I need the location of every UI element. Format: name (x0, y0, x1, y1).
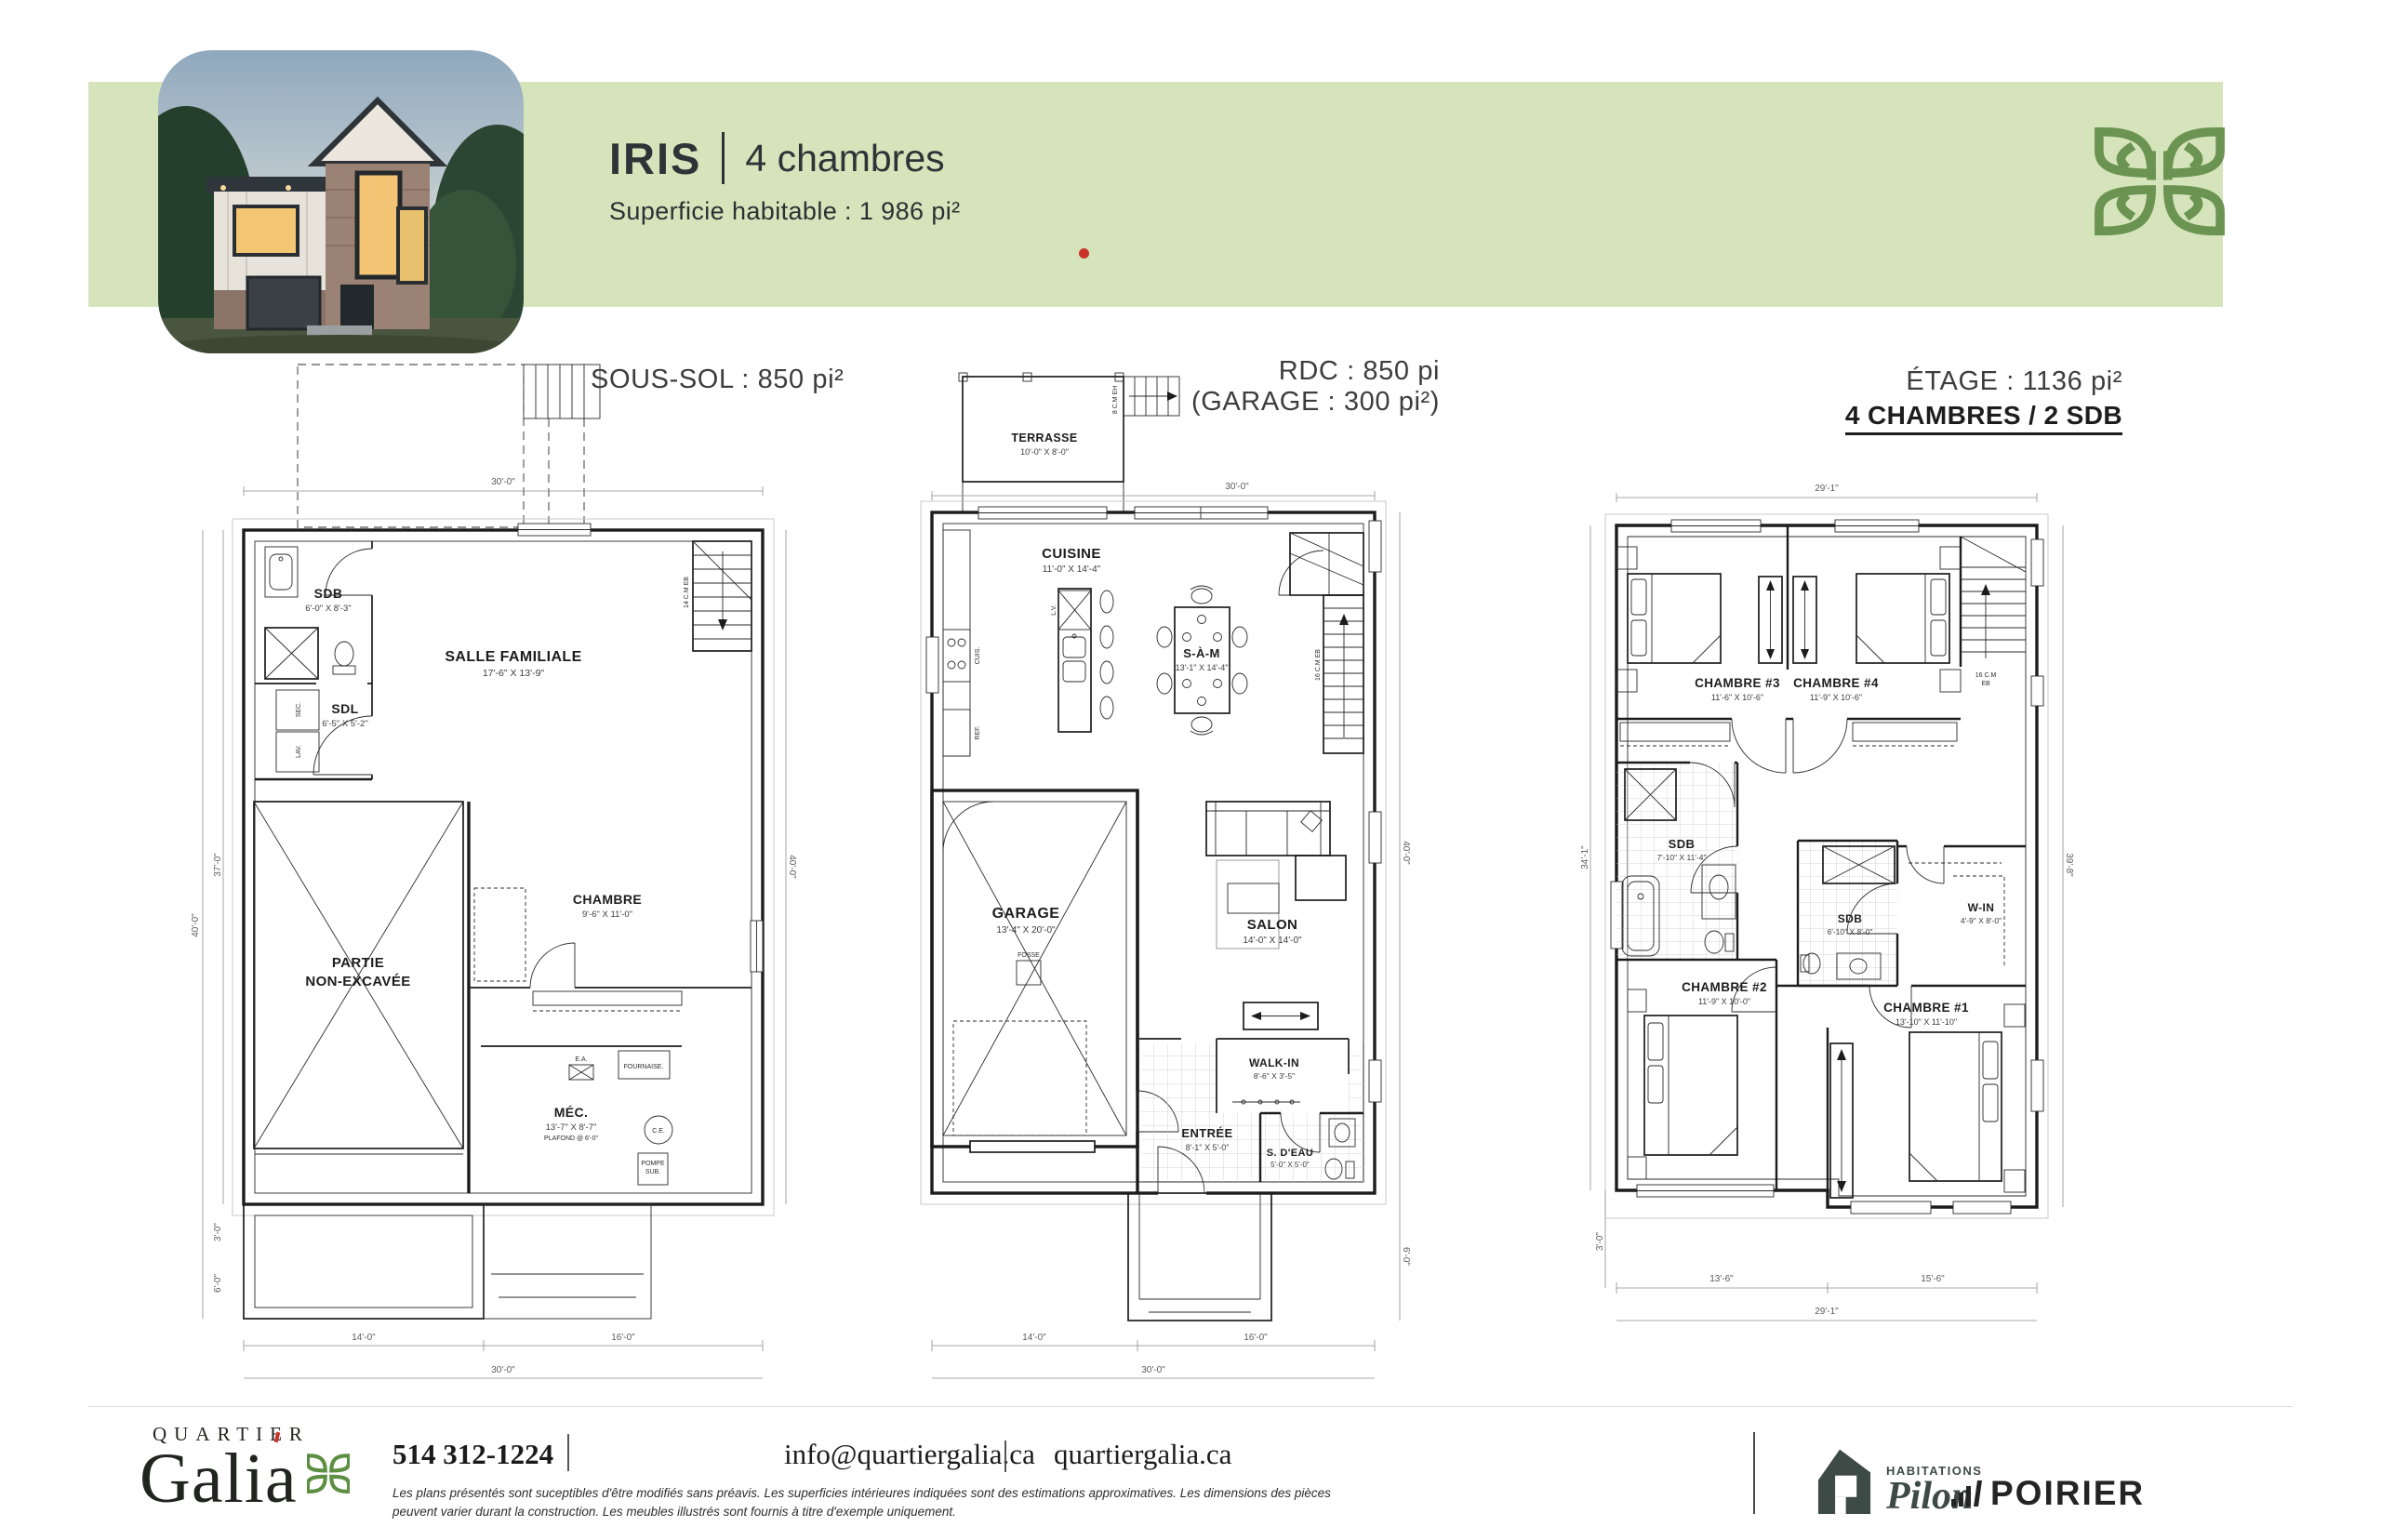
plan-sous-sol-drawing: 30'-0" SDB 6'-0" X 8'-3" (140, 358, 828, 1414)
room-label-salon: SALON (1247, 917, 1298, 933)
title-divider (722, 132, 725, 184)
room-note-mec: PLAFOND @ 6'-0" (544, 1135, 599, 1142)
room-dims-entree: 8'-1" X 5'-0" (1186, 1143, 1230, 1152)
room-label-sam: S-À-M (1183, 646, 1220, 660)
room-dims-salle-familiale: 17'-6" X 13'-9" (483, 668, 545, 679)
dim-bottom-total-rdc: 30'-0" (1141, 1365, 1165, 1375)
label-pompe-1: POMPE (641, 1161, 665, 1167)
footer-brand: QUARTIER Galia (140, 1423, 350, 1511)
room-label-sdeau: S. D'EAU (1267, 1148, 1313, 1159)
room-label-sdb1: SDB (1669, 837, 1696, 851)
room-label-chambre: CHAMBRE (573, 892, 642, 907)
footer-divider-line (88, 1406, 2293, 1407)
plan-title-etage-line2: 4 CHAMBRES / 2 SDB (1845, 401, 2122, 435)
pilon-house-icon (1814, 1440, 1875, 1518)
room-dims-cuisine: 11'-0" X 14'-4" (1043, 564, 1101, 575)
terrace-stairs-note: 8 C.M EH (1112, 386, 1119, 414)
footer-disclaimer-line2: peuvent varier durant la construction. L… (392, 1503, 1388, 1521)
room-dims-sdb: 6'-0" X 8'-3" (305, 604, 351, 614)
plan-etage-drawing: 29'-1" 16 C.M EB (1563, 446, 2214, 1330)
dim-right-b-rdc: 6'-0" (1401, 1247, 1411, 1266)
dim-bottom-total: 30'-0" (491, 1365, 515, 1375)
bed-chambre3 (1616, 547, 1721, 692)
room-label-sdl: SDL (331, 701, 358, 716)
dim-bottom-left-etage: 13'-6" (1709, 1274, 1734, 1284)
room-dims-walkin: 8'-6" X 3'-5" (1254, 1071, 1295, 1081)
label-pompe-2: SUB. (645, 1169, 660, 1175)
tv-console (1244, 1002, 1318, 1029)
dim-left-b: 6'-0" (213, 1274, 223, 1293)
etage-stairs-note-2: EB (1981, 681, 1990, 687)
dim-top-etage: 29'-1" (1815, 484, 1839, 494)
room-dims-terrasse: 10'-0" X 8'-0" (1020, 447, 1069, 457)
partner-poirier-logo: POIRIER (1951, 1479, 2145, 1508)
dim-left-b-etage: 3'-0" (1595, 1232, 1605, 1251)
room-dims-sam: 13'-1" X 14'-4" (1176, 663, 1229, 672)
room-dims-chambre4: 11'-9" X 10'-6" (1810, 693, 1862, 702)
kitchen-island (1058, 589, 1113, 732)
room-label-sdb: SDB (314, 586, 343, 601)
room-label-garage: GARAGE (992, 906, 1060, 922)
wardrobe-chambre1 (1830, 1043, 1853, 1198)
dim-left-a: 3'-0" (213, 1223, 223, 1241)
room-label-walkin: WALK-IN (1249, 1056, 1299, 1069)
kitchen-counter (943, 530, 970, 756)
room-dims-sdl: 6'-5" X 5'-2" (322, 719, 367, 729)
basement-stairs (693, 541, 752, 651)
etage-stairs (1961, 537, 2026, 667)
header-title-block: IRIS 4 chambres Superficie habitable : 1… (609, 132, 961, 226)
dim-left-inner: 37'-0" (213, 853, 223, 877)
room-dims-chambre2: 11'-9" X 10'-0" (1698, 997, 1750, 1006)
footer-brand-name: Galia (140, 1446, 298, 1511)
room-dims-sdb1: 7'-10" X 11'-4" (1656, 853, 1706, 862)
dim-top-rdc: 30'-0" (1225, 482, 1249, 492)
room-label-chambre1: CHAMBRE #1 (1883, 1001, 1969, 1015)
room-dims-sdb2: 6'-10" X 8'-0" (1828, 927, 1873, 936)
room-label-chambre2: CHAMBRE #2 (1682, 980, 1767, 994)
rdc-windows (926, 507, 1381, 1102)
basement-stairs-note: 14 C.M EB (684, 577, 690, 608)
poirier-bars-icon (1951, 1480, 1983, 1508)
label-ea: E.A. (575, 1056, 587, 1063)
footer-disclaimer: Les plans présentés sont suceptibles d'ê… (392, 1484, 1388, 1521)
room-label-partie-1: PARTIE (332, 955, 384, 971)
label-lv: L.V. (1051, 604, 1057, 616)
dim-bottom-left-rdc: 14'-0" (1022, 1333, 1046, 1343)
footer-email[interactable]: info@quartiergalia.ca (784, 1438, 1035, 1471)
plan-title-etage-line1: ÉTAGE : 1136 pi² (1842, 366, 2122, 397)
room-dims-win: 4'-9" X 8'-0" (1961, 916, 2002, 925)
room-label-terrasse: TERRASSE (1011, 431, 1077, 445)
footer-phone: 514 312-1224 (392, 1438, 553, 1471)
dim-right: 40'-0" (787, 855, 797, 879)
basement-terrace-outline (298, 365, 600, 527)
dim-left-outer: 40'-0" (191, 913, 201, 937)
footer-partner-divider (1753, 1432, 1755, 1514)
plan-rdc-drawing: 8 C.M EH TERRASSE 10'-0" X 8'-0" 30'-0" … (874, 358, 1507, 1414)
dim-left-etage: 34'-1" (1580, 845, 1590, 870)
dim-bottom-right-rdc: 16'-0" (1244, 1333, 1268, 1343)
poirier-name: POIRIER (1990, 1479, 2145, 1508)
room-label-sdb2: SDB (1838, 912, 1863, 925)
dining-table (1157, 586, 1247, 735)
footer-galia-leaf-icon (307, 1449, 350, 1506)
label-ce: C.E. (652, 1128, 665, 1135)
footer-website[interactable]: quartiergalia.ca (1054, 1438, 1231, 1471)
room-dims-garage: 13'-4" X 20'-0" (996, 925, 1056, 936)
label-cuis: CUIS. (975, 647, 981, 665)
room-label-cuisine: CUISINE (1042, 546, 1101, 562)
room-label-chambre4: CHAMBRE #4 (1793, 676, 1879, 690)
dim-right-rdc: 40'-0" (1401, 841, 1411, 865)
dim-bottom-right-etage: 15'-6" (1921, 1274, 1945, 1284)
label-lav: LAV. (296, 745, 302, 758)
room-dims-chambre: 9'-6" X 11'-0" (582, 909, 632, 920)
bed-chambre2 (1628, 989, 1737, 1179)
model-subtitle: 4 chambres (745, 137, 944, 180)
room-label-partie-2: NON-EXCAVÉE (305, 974, 410, 989)
rdc-stairs-note: 16 C.M EB (1315, 649, 1322, 681)
room-dims-sdeau: 5'-0" X 5'-0" (1270, 1161, 1310, 1169)
room-dims-chambre3: 11'-6" X 10'-6" (1711, 693, 1763, 702)
model-name: IRIS (609, 133, 701, 184)
label-fosse: FOSSE (1018, 952, 1040, 959)
bed-chambre4 (1856, 547, 1961, 692)
rdc-stairs (1279, 533, 1363, 753)
living-area: Superficie habitable : 1 986 pi² (609, 197, 961, 226)
label-fournaise: FOURNAISE. (624, 1064, 664, 1070)
room-dims-salon: 14'-0" X 14'-0" (1243, 936, 1302, 946)
page: IRIS 4 chambres Superficie habitable : 1… (0, 0, 2381, 1540)
room-dims-mec: 13'-7" X 8'-7" (546, 1122, 597, 1133)
footer-separator-2 (1004, 1440, 1006, 1472)
footer-separator-1 (567, 1434, 569, 1471)
dim-bottom-right: 16'-0" (611, 1333, 635, 1343)
walkin-rod (1232, 1100, 1300, 1104)
dim-bottom-left: 14'-0" (352, 1333, 376, 1343)
room-label-entree: ENTRÉE (1181, 1126, 1232, 1140)
galia-leaf-logo (2091, 96, 2228, 283)
room-label-win: W-IN (1968, 901, 1995, 914)
room-label-salle-familiale: SALLE FAMILIALE (445, 649, 581, 665)
plan-title-etage: ÉTAGE : 1136 pi² 4 CHAMBRES / 2 SDB (1842, 366, 2122, 435)
room-label-chambre3: CHAMBRE #3 (1695, 676, 1780, 690)
house-photo-illustration (158, 50, 524, 353)
label-sec: SEC. (296, 702, 302, 717)
etage-stairs-note-1: 16 C.M (1975, 672, 1997, 679)
room-dims-chambre1: 13'-10" X 11'-10" (1895, 1017, 1957, 1027)
red-dot-mark (1079, 248, 1089, 259)
dim-top: 30'-0" (491, 477, 515, 487)
front-porch (1128, 1193, 1271, 1321)
dim-bottom-total-etage: 29'-1" (1815, 1307, 1839, 1317)
room-label-mec: MÉC. (554, 1105, 589, 1120)
bed-chambre1 (1909, 1004, 2025, 1192)
dim-right-etage: 39'-8" (2064, 853, 2074, 877)
footer-disclaimer-line1: Les plans présentés sont suceptibles d'ê… (392, 1484, 1388, 1503)
house-photo (158, 50, 524, 353)
label-ref: REF. (975, 725, 981, 739)
